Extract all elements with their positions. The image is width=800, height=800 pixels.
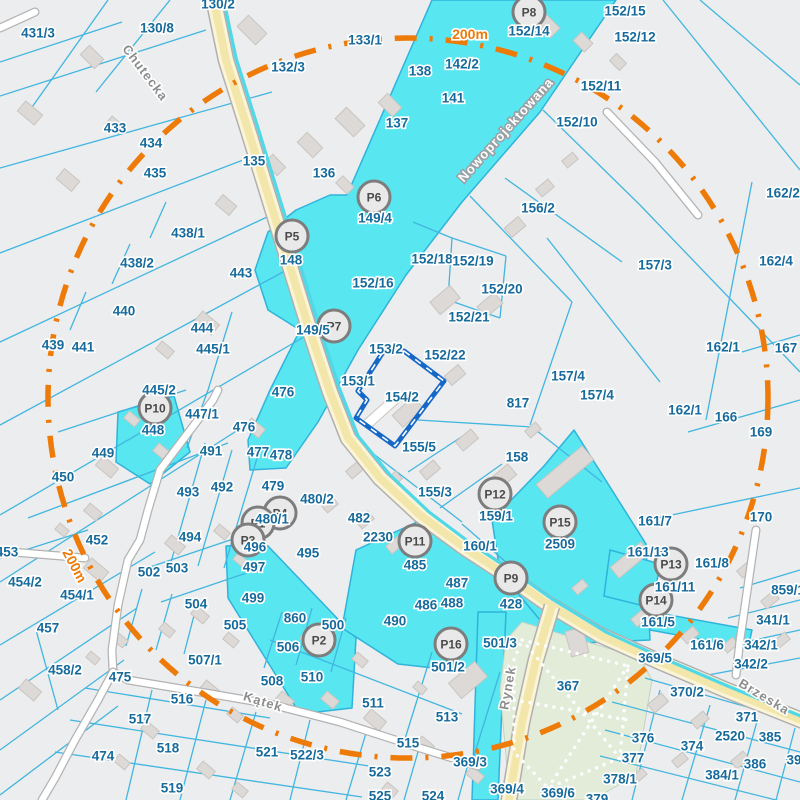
parcel-label: 494 <box>179 530 202 545</box>
parcel-label: 478 <box>270 448 293 463</box>
parcel-label: 449 <box>92 446 115 461</box>
parcel-label: 136 <box>313 166 336 181</box>
parcel-label: 152/18 <box>411 252 453 267</box>
parcel-label: 503 <box>166 561 189 576</box>
parcel-label: 161/5 <box>641 615 675 630</box>
parcel-label: 859/1 <box>771 583 800 598</box>
parcel-label: 379 <box>586 792 609 800</box>
parcel-label: 152/10 <box>556 115 597 130</box>
parcel-label: 505 <box>224 618 247 633</box>
marker-label-P8: P8 <box>522 6 537 20</box>
parcel-label: 152/15 <box>604 4 646 19</box>
parcel-label: 491 <box>200 444 223 459</box>
parcel-label: 444 <box>191 321 214 336</box>
parcel-label: 518 <box>157 741 180 756</box>
parcel-label: 152/20 <box>481 282 522 297</box>
marker-label-P9: P9 <box>504 572 519 586</box>
parcel-label: 370/2 <box>670 685 704 700</box>
parcel-label: 152/22 <box>424 348 465 363</box>
marker-label-P6: P6 <box>367 191 382 205</box>
parcel-label: 441 <box>72 340 95 355</box>
parcel-label: 386 <box>744 757 767 772</box>
parcel-label: 499 <box>242 591 265 606</box>
parcel-label: 515 <box>397 736 420 751</box>
parcel-label: 495 <box>297 546 320 561</box>
parcel-label: 141 <box>442 91 465 106</box>
marker-label-P5: P5 <box>285 230 300 244</box>
parcel-label: 517 <box>129 712 152 727</box>
parcel-label: 480/1 <box>255 512 289 527</box>
parcel-label: 860 <box>284 611 307 626</box>
parcel-label: 135 <box>243 154 266 169</box>
parcel-label: 161/7 <box>638 514 672 529</box>
parcel-label: 369/5 <box>638 651 672 666</box>
parcel-label: 513 <box>436 710 459 725</box>
parcel-label: 369/3 <box>453 755 487 770</box>
parcel-label: 169 <box>750 425 773 440</box>
parcel-label: 378/1 <box>603 772 637 787</box>
parcel-label: 374 <box>681 739 704 754</box>
parcel-label: 479 <box>262 479 285 494</box>
parcel-label: 435 <box>144 166 167 181</box>
parcel-label: 454/2 <box>8 575 42 590</box>
parcel-label: 162/1 <box>668 403 702 418</box>
parcel-label: 367 <box>557 679 580 694</box>
parcel-label: 434 <box>140 136 163 151</box>
parcel-label: 133/1 <box>348 33 382 48</box>
parcel-label: 506 <box>277 640 300 655</box>
parcel-label: 153/1 <box>341 374 375 389</box>
marker-label-P10: P10 <box>144 402 166 416</box>
parcel-label: 137 <box>386 116 409 131</box>
parcel-label: 508 <box>261 674 284 689</box>
parcel-label: 511 <box>362 696 384 711</box>
parcel-label: 524 <box>422 789 445 800</box>
parcel-label: 817 <box>507 396 530 411</box>
parcel-label: 488 <box>441 596 464 611</box>
parcel-label: 149/5 <box>296 323 330 338</box>
parcel-label: 157/3 <box>638 258 672 273</box>
parcel-label: 155/5 <box>402 440 436 455</box>
parcel-label: 161/8 <box>695 556 729 571</box>
parcel-label: 2520 <box>715 729 745 744</box>
parcel-label: 132/3 <box>271 60 305 75</box>
marker-label-P15: P15 <box>549 516 571 530</box>
parcel-label: 156/2 <box>521 201 555 216</box>
parcel-label: 342/2 <box>734 657 768 672</box>
parcel-label: 130/2 <box>201 0 235 12</box>
parcel-label: 155/3 <box>418 485 452 500</box>
parcel-label: 162/1 <box>706 340 740 355</box>
parcel-label: 152/14 <box>508 24 550 39</box>
parcel-label: 474 <box>92 749 115 764</box>
parcel-label: 445/2 <box>142 383 176 398</box>
marker-label-P16: P16 <box>440 638 462 652</box>
parcel-label: 149/4 <box>358 211 392 226</box>
cadastral-map-svg[interactable]: P4P1P3P2P5P6P7P8P9P10P11P12P13P14P15P164… <box>0 0 800 800</box>
parcel-label: 162/2 <box>766 186 800 201</box>
parcel-label: 454/1 <box>60 588 94 603</box>
marker-label-P12: P12 <box>484 488 506 502</box>
parcel-label: 433 <box>104 121 127 136</box>
parcel-label: 431/3 <box>21 26 55 41</box>
parcel-label: 157/4 <box>551 369 585 384</box>
parcel-label: 371 <box>736 710 759 725</box>
parcel-label: 377 <box>622 751 645 766</box>
parcel-label: 160/1 <box>463 539 497 554</box>
parcel-label: 2230 <box>363 530 393 545</box>
parcel-label: 476 <box>233 420 256 435</box>
marker-label-P2: P2 <box>312 634 327 648</box>
parcel-label: 497 <box>243 560 266 575</box>
parcel-label: 170 <box>750 510 773 525</box>
parcel-label: 443 <box>230 266 253 281</box>
map-canvas[interactable]: P4P1P3P2P5P6P7P8P9P10P11P12P13P14P15P164… <box>0 0 800 800</box>
parcel-label: 452 <box>86 533 109 548</box>
parcel-label: 152/12 <box>614 30 655 45</box>
parcel-label: 477 <box>247 445 270 460</box>
parcel-label: 2509 <box>545 537 575 552</box>
parcel-label: 39 <box>786 753 800 768</box>
parcel-label: 161/11 <box>655 580 696 595</box>
parcel-label: 516 <box>171 692 194 707</box>
parcel-label: 453 <box>0 545 19 560</box>
parcel-label: 158 <box>506 450 529 465</box>
parcel-label: 501/2 <box>431 660 465 675</box>
parcel-label: 159/1 <box>479 509 513 524</box>
parcel-label: 510 <box>301 670 324 685</box>
parcel-label: 486 <box>415 598 438 613</box>
parcel-label: 448 <box>142 423 165 438</box>
parcel-label: 457 <box>37 621 60 636</box>
parcel-label: 458/2 <box>48 663 82 678</box>
parcel-label: 492 <box>211 480 234 495</box>
parcel-label: 476 <box>272 385 295 400</box>
parcel-label: 523 <box>369 765 392 780</box>
parcel-label: 525 <box>369 789 392 800</box>
parcel-label: 138 <box>409 64 432 79</box>
parcel-label: 504 <box>185 597 208 612</box>
parcel-label: 342/1 <box>744 638 778 653</box>
parcel-label: 157/4 <box>580 388 614 403</box>
marker-label-P13: P13 <box>660 558 682 572</box>
parcel-label: 485 <box>404 558 427 573</box>
parcel-label: 507/1 <box>188 653 222 668</box>
parcel-label: 152/16 <box>352 276 394 291</box>
parcel-label: 496 <box>244 540 267 555</box>
parcel-label: 167 <box>775 341 798 356</box>
parcel-label: 500 <box>322 618 345 633</box>
parcel-label: 482 <box>348 511 371 526</box>
parcel-label: 438/1 <box>171 226 205 241</box>
parcel-label: 166 <box>715 410 738 425</box>
parcel-label: 161/6 <box>690 638 724 653</box>
parcel-label: 369/4 <box>490 782 524 797</box>
parcel-label: 376 <box>632 731 655 746</box>
parcel-label: 385 <box>759 730 782 745</box>
parcel-label: 480/2 <box>300 492 334 507</box>
parcel-label: 130/8 <box>140 21 174 36</box>
marker-label-P14: P14 <box>645 594 667 608</box>
parcel-label: 154/2 <box>385 390 419 405</box>
parcel-label: 487 <box>446 576 469 591</box>
scale-label-200m: 200m <box>452 26 488 42</box>
parcel-label: 519 <box>161 781 184 796</box>
parcel-label: 502 <box>138 565 161 580</box>
parcel-label: 447/1 <box>185 407 219 422</box>
parcel-label: 152/21 <box>448 310 490 325</box>
parcel-label: 438/2 <box>120 256 154 271</box>
parcel-label: 521 <box>256 745 279 760</box>
parcel-label: 490 <box>384 614 407 629</box>
parcel-label: 142/2 <box>445 57 479 72</box>
parcel-label: 428 <box>500 597 523 612</box>
parcel-label: 439 <box>42 338 65 353</box>
parcel-label: 148 <box>280 253 303 268</box>
parcel-label: 445/1 <box>196 342 230 357</box>
parcel-label: 475 <box>109 670 132 685</box>
parcel-label: 440 <box>113 304 136 319</box>
parcel-label: 152/19 <box>452 254 493 269</box>
parcel-label: 501/3 <box>483 636 517 651</box>
parcel-label: 522/3 <box>290 748 324 763</box>
parcel-label: 341/1 <box>756 613 790 628</box>
parcel-label: 153/2 <box>369 342 403 357</box>
parcel-label: 152/11 <box>581 79 622 94</box>
parcel-label: 369/6 <box>541 786 575 800</box>
parcel-label: 384/1 <box>705 768 739 783</box>
parcel-label: 161/13 <box>627 545 669 560</box>
parcel-label: 162/4 <box>759 254 793 269</box>
marker-label-P11: P11 <box>405 535 426 549</box>
parcel-label: 450 <box>52 470 75 485</box>
parcel-label: 493 <box>177 485 200 500</box>
